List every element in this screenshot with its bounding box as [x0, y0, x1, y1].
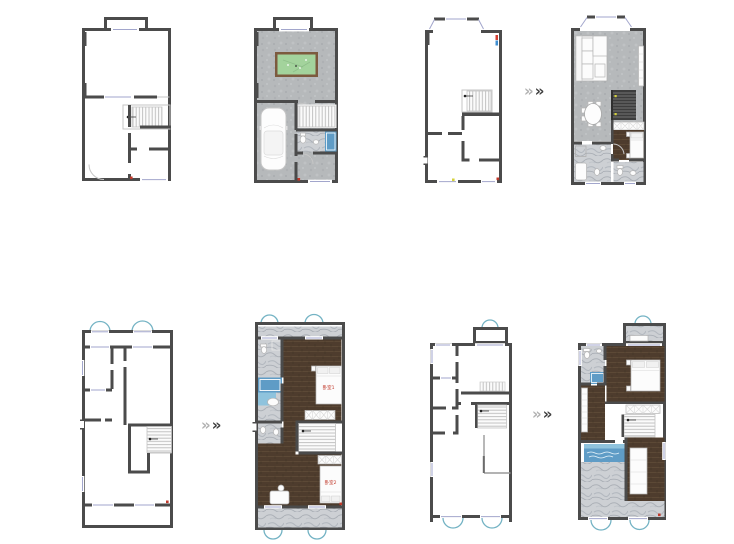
cabinet: [630, 448, 647, 494]
bay-window: [430, 17, 484, 29]
floorplan-4-original: [425, 320, 520, 538]
bed: [630, 132, 644, 158]
closet: [582, 388, 588, 432]
floorplan-board: 卧室1 卧室2: [0, 0, 734, 544]
floorplan-2-furnished: [567, 12, 650, 190]
staircase: [624, 415, 655, 438]
floorplan-3-original-svg: [78, 316, 177, 542]
chevron-dark-icon: »: [535, 82, 545, 100]
arched-window: [630, 520, 649, 530]
bathtub: [576, 163, 587, 180]
arched-window: [264, 530, 282, 539]
wardrobe: [626, 405, 660, 414]
balcony-bump: [625, 325, 665, 343]
car: [260, 108, 288, 170]
shelf: [639, 46, 644, 86]
chevron-light-icon: »: [532, 405, 542, 423]
floorplan-2-furnished-svg: [567, 12, 650, 190]
balcony-bump: [475, 329, 507, 343]
chevron-light-icon: »: [524, 82, 534, 100]
arched-window: [482, 518, 502, 528]
bathroom: [297, 132, 337, 152]
staircase: [299, 424, 336, 452]
wardrobe: [613, 122, 644, 130]
balcony-bottom: [258, 509, 342, 528]
bathroom-top: [581, 346, 605, 384]
floorplan-4-original-svg: [425, 320, 520, 538]
arched-window: [443, 518, 463, 528]
double-chevron-right-icon: »»: [524, 84, 544, 99]
double-chevron-right-icon: »»: [532, 407, 552, 422]
chevron-light-icon: »: [201, 416, 211, 434]
floorplan-3-furnished-svg: 卧室1 卧室2: [248, 314, 350, 542]
arched-window: [635, 316, 651, 324]
staircase: [296, 105, 337, 129]
floorplan-3-original: [78, 316, 177, 542]
soaking-pool: [584, 444, 626, 462]
staircase: [147, 427, 172, 453]
terrace: [581, 462, 626, 517]
floorplan-1-original-svg: [78, 10, 175, 186]
staircase: [478, 405, 507, 428]
billiard-table: [275, 52, 318, 77]
floorplan-2-original: [421, 12, 507, 188]
wardrobe-1: [305, 411, 335, 420]
sofa: [576, 36, 607, 81]
staircase-dark: [611, 90, 636, 120]
floorplan-4-furnished-svg: [574, 320, 670, 538]
bed-1: 卧室1: [316, 366, 342, 404]
plumbing-mark: [496, 41, 499, 46]
floorplan-1-original: [78, 10, 175, 186]
balcony-top: [258, 327, 342, 338]
bathroom-right: [614, 162, 644, 182]
bedroom-2-label: 卧室2: [324, 479, 336, 486]
floorplan-1-furnished: [248, 10, 345, 186]
bed-2: 卧室2: [320, 466, 342, 503]
bay-window: [581, 15, 632, 27]
chevron-dark-icon: »: [212, 416, 222, 434]
heating-mark: [496, 35, 499, 40]
bathroom-top: [258, 340, 282, 393]
floorplan-3-furnished: 卧室1 卧室2: [248, 314, 350, 542]
floorplan-2-original-svg: [421, 12, 507, 188]
bathroom-left: [574, 145, 611, 183]
floorplan-4-furnished: [574, 320, 670, 538]
bed: [631, 360, 660, 391]
staircase: [462, 90, 492, 112]
bathroom-lower: [258, 424, 282, 444]
wardrobe-2: [318, 456, 342, 465]
bedroom-1-label: 卧室1: [322, 384, 334, 391]
arched-window: [308, 530, 326, 539]
arched-window: [591, 520, 611, 530]
chevron-dark-icon: »: [543, 405, 553, 423]
bathroom-middle: [258, 393, 282, 422]
arched-window: [132, 321, 153, 332]
arched-window: [482, 320, 498, 328]
double-chevron-right-icon: »»: [201, 418, 221, 433]
upper-stairs: [480, 382, 505, 391]
floorplan-1-furnished-svg: [248, 10, 345, 186]
